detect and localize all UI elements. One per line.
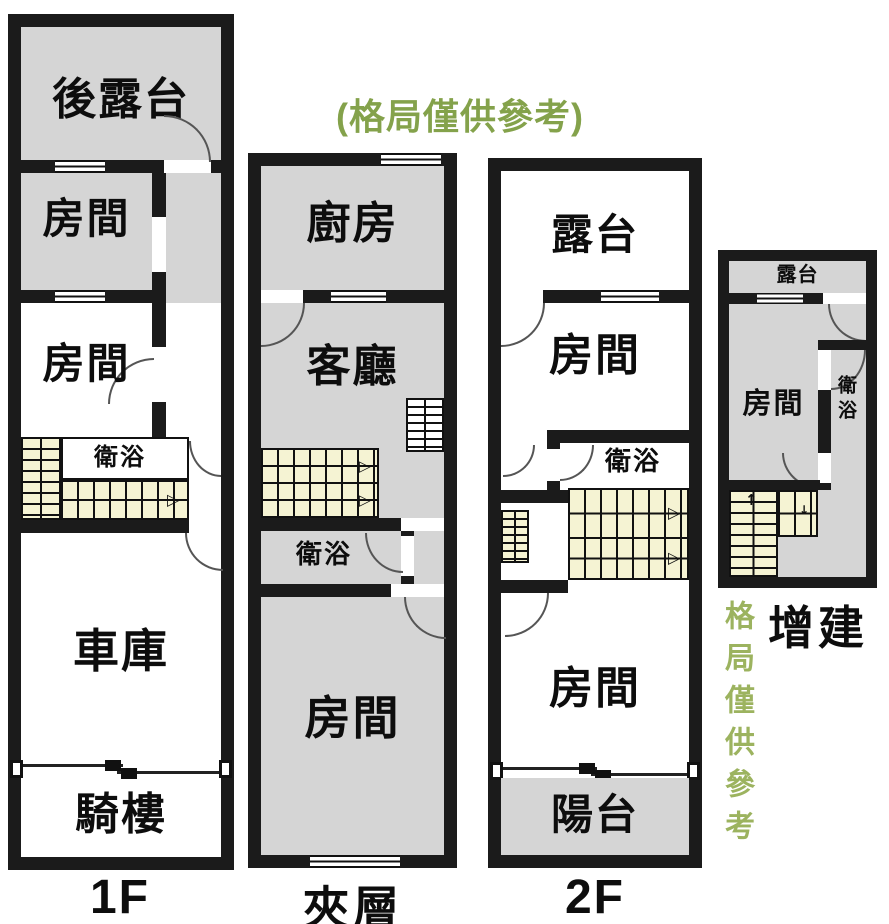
corridor-fill	[166, 173, 221, 303]
door-arc	[560, 445, 594, 481]
room-label-balcony: 陽台	[501, 793, 689, 837]
wall	[21, 520, 189, 533]
door-arc	[185, 533, 223, 571]
door-opening	[391, 584, 444, 597]
window	[55, 160, 105, 173]
layout-disclaimer-note-vertical: 格局僅供參考	[714, 600, 758, 860]
floorplan-2f: 露台 房間 衛浴 ▷ ▷ 房間 陽台	[488, 158, 702, 868]
wall	[729, 480, 820, 490]
wall	[547, 430, 689, 443]
door-jamb	[219, 760, 232, 778]
ladder	[406, 398, 444, 452]
wall	[501, 490, 568, 503]
window	[601, 290, 659, 303]
door-arc	[828, 304, 866, 342]
wall	[261, 518, 401, 531]
room-label-living: 客廳	[261, 344, 444, 390]
stair-arrow-icon: ▷	[167, 490, 179, 509]
layout-disclaimer-note: (格局僅供參考)	[285, 88, 635, 140]
window	[331, 290, 386, 303]
door-opening	[401, 518, 444, 531]
wall	[261, 584, 391, 597]
floorplan-1f: 後露台 房間 房間 衛浴 ▷ 車庫 騎樓	[8, 14, 234, 870]
door-opening	[823, 293, 866, 304]
door-opening	[152, 217, 166, 272]
window	[381, 153, 441, 166]
room-label-bath: 衛浴	[593, 448, 673, 475]
door-arc	[261, 303, 305, 347]
door-arc	[404, 597, 446, 639]
door-opening	[152, 347, 166, 402]
room-label-room-b: 房間	[501, 666, 689, 712]
floorplan-mezzanine: 廚房 客廳 ▷ ▷ 衛浴 房間	[248, 153, 457, 868]
stair-arrow-icon: ▷	[668, 503, 680, 522]
door-jamb	[10, 760, 23, 778]
floorplan-annex: 露台 衛浴 房間 ↑ ↓	[718, 250, 877, 588]
stair-arrow-icon: ↓	[799, 503, 809, 517]
door-arc	[189, 441, 221, 477]
room-label-bath: 衛浴	[269, 541, 379, 568]
wall	[501, 580, 568, 593]
window	[757, 293, 803, 304]
room-label-room-a: 房間	[21, 197, 152, 241]
room-label-arcade: 騎樓	[21, 792, 221, 838]
stair-arrow-icon: ↑	[745, 491, 758, 509]
floor-label-1f: 1F	[55, 870, 185, 924]
ladder	[501, 510, 529, 563]
floorplan-sheet: (格局僅供參考) 後露台 房間 房間 衛浴 ▷ 車庫	[0, 0, 889, 924]
room-label-bath: 衛浴	[65, 445, 175, 470]
room-label-room-b: 房間	[21, 342, 152, 386]
sliding-door-handle	[579, 763, 595, 774]
stair-arrow-icon: ▷	[359, 457, 371, 475]
stairs-vertical	[21, 437, 61, 520]
door-opening	[189, 520, 221, 533]
stair-arrow-icon: ▷	[359, 491, 371, 509]
room-label-room-a: 房間	[501, 333, 689, 379]
door-opening	[547, 449, 560, 481]
door-arc	[505, 593, 549, 637]
room-label-room: 房間	[729, 389, 818, 419]
floor-label-mezzanine: 夾層	[283, 872, 423, 924]
room-label-terrace: 露台	[501, 213, 689, 257]
room-label-garage: 車庫	[21, 627, 221, 675]
floor-label-annex: 增建	[758, 592, 878, 658]
stair-arrow-icon: ▷	[668, 548, 680, 567]
room-label-kitchen: 廚房	[261, 201, 444, 247]
room-label-bath: 衛浴	[835, 355, 855, 445]
room-label-room: 房間	[261, 694, 444, 742]
wall	[818, 340, 866, 350]
window	[55, 290, 105, 303]
window	[310, 855, 400, 868]
room-label-terrace: 露台	[729, 265, 866, 286]
sliding-door-handle	[121, 768, 137, 779]
sliding-door-handle	[105, 760, 121, 771]
room-label-rear-terrace: 後露台	[21, 77, 221, 123]
door-opening	[261, 290, 303, 303]
floor-label-2f: 2F	[535, 870, 655, 924]
stairs-horizontal	[778, 490, 818, 537]
door-opening	[501, 290, 543, 303]
door-opening	[818, 350, 831, 390]
door-arc	[503, 445, 535, 477]
